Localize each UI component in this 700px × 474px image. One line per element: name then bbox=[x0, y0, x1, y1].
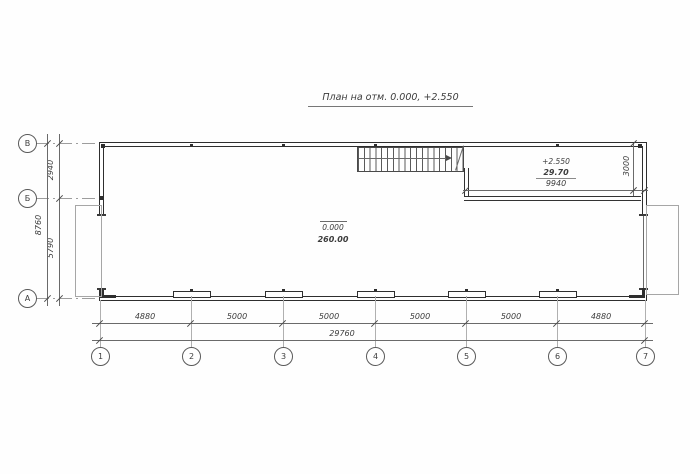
corner-column-mark bbox=[638, 144, 642, 148]
floor-plan-canvas: План на отм. 0.000, +2.550 bbox=[0, 0, 700, 474]
axis-bubble-col-5: 5 bbox=[457, 347, 476, 366]
pilaster-mark bbox=[190, 289, 193, 292]
pilaster bbox=[448, 291, 486, 298]
pilaster-mark bbox=[282, 289, 285, 292]
dim-line-mezzanine-width bbox=[463, 190, 648, 191]
dim-line-left-segments bbox=[59, 134, 60, 306]
dim-label: 5000 bbox=[212, 312, 262, 321]
mezzanine-elevation-label: +2.550 bbox=[536, 157, 576, 166]
elevation-mark-line bbox=[320, 221, 347, 222]
axis-bubble-col-3: 3 bbox=[274, 347, 293, 366]
right-platform bbox=[646, 205, 679, 295]
dim-label-total: 8760 bbox=[34, 205, 44, 245]
mezzanine-area-label: 29.70 bbox=[536, 168, 576, 179]
pilaster-mark bbox=[465, 289, 468, 292]
dim-label: 4880 bbox=[120, 312, 170, 321]
pilaster bbox=[265, 291, 303, 298]
dim-label: 9940 bbox=[531, 179, 581, 188]
axis-bubble-col-6: 6 bbox=[548, 347, 567, 366]
column-mark bbox=[190, 144, 193, 147]
dim-line-left-total bbox=[47, 134, 48, 306]
corner-column-mark bbox=[629, 295, 645, 298]
drawing-title: План на отм. 0.000, +2.550 bbox=[308, 92, 473, 107]
dim-label: 3000 bbox=[622, 146, 632, 186]
axis-bubble-row-b: Б bbox=[18, 189, 37, 208]
dim-line-bottom-total bbox=[92, 340, 653, 341]
axis-bubble-col-7: 7 bbox=[636, 347, 655, 366]
column-mark bbox=[282, 144, 285, 147]
ground-area-label: 260.00 bbox=[311, 235, 355, 244]
stair-arrow-icon bbox=[446, 155, 452, 161]
left-platform bbox=[75, 205, 102, 297]
mezzanine-edge-horizontal bbox=[464, 196, 641, 201]
pilaster-mark bbox=[374, 289, 377, 292]
corner-column-mark bbox=[101, 144, 105, 148]
pilaster bbox=[539, 291, 577, 298]
ground-elevation-label: 0.000 bbox=[313, 223, 353, 232]
dim-label: 4880 bbox=[576, 312, 626, 321]
right-gate-line bbox=[643, 216, 644, 288]
column-mark-axis-b bbox=[99, 196, 103, 200]
column-mark bbox=[556, 144, 559, 147]
axis-bubble-row-v: В bbox=[18, 134, 37, 153]
axis-bubble-row-a: А bbox=[18, 289, 37, 308]
axis-bubble-col-4: 4 bbox=[366, 347, 385, 366]
pilaster bbox=[173, 291, 211, 298]
dim-label: 5000 bbox=[304, 312, 354, 321]
axis-line-b-row bbox=[36, 198, 98, 199]
mezzanine-edge-vertical bbox=[464, 168, 469, 197]
axis-bubble-col-1: 1 bbox=[91, 347, 110, 366]
pilaster-mark bbox=[556, 289, 559, 292]
pilaster bbox=[357, 291, 395, 298]
corner-column-mark bbox=[100, 295, 116, 298]
dim-label: 5000 bbox=[395, 312, 445, 321]
axis-bubble-col-2: 2 bbox=[182, 347, 201, 366]
dim-label: 5000 bbox=[486, 312, 536, 321]
stair-direction-line bbox=[359, 158, 446, 159]
dim-label-total: 29760 bbox=[312, 329, 372, 338]
